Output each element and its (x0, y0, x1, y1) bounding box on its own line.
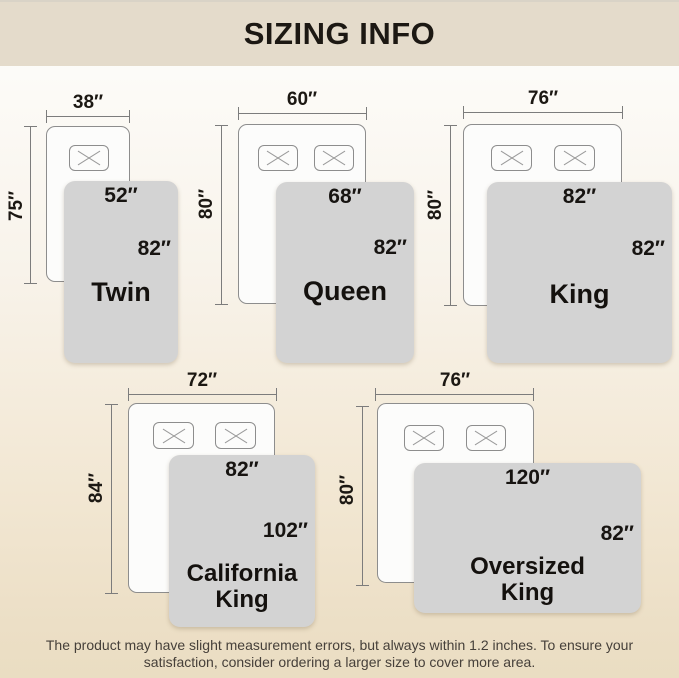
bed-height-label: 80″ (425, 190, 447, 220)
pillow-x-icon (492, 146, 531, 170)
pillow-x-icon (405, 426, 443, 450)
blanket-height-label: 82″ (632, 237, 665, 261)
pillow (314, 145, 354, 171)
pillow-x-icon (259, 146, 297, 170)
pillow-x-icon (315, 146, 353, 170)
blanket: 82″ 82″ King (487, 182, 672, 363)
blanket: 68″ 82″ Queen (276, 182, 414, 363)
page-title: SIZING INFO (244, 16, 436, 52)
pillow (404, 425, 444, 451)
pillow-x-icon (216, 423, 255, 448)
bed-height-label: 84″ (86, 473, 108, 503)
bed-width-label: 76″ (440, 370, 470, 392)
blanket: 82″ 102″ California King (169, 455, 315, 627)
size-name-label: Twin (91, 277, 150, 308)
blanket-height-label: 102″ (263, 519, 308, 543)
size-name-label: Oversized King (470, 554, 585, 606)
pillow-x-icon (70, 146, 108, 170)
blanket-width-label: 82″ (225, 458, 258, 482)
bed-height-label: 80″ (196, 189, 218, 219)
blanket: 52″ 82″ Twin (64, 181, 178, 363)
size-name-label: Queen (303, 276, 387, 307)
blanket: 120″ 82″ Oversized King (414, 463, 641, 613)
bed-width-label: 76″ (528, 88, 558, 110)
blanket-width-label: 82″ (563, 185, 596, 209)
pillow (491, 145, 532, 171)
sizing-info-graphic: SIZING INFO 38″ 75″ 52″ 82″ Twin 60″ 80″… (0, 0, 679, 678)
pillow (554, 145, 595, 171)
footer-line-1: The product may have slight measurement … (0, 637, 679, 654)
bed-width-label: 60″ (287, 89, 317, 111)
size-name-label: King (550, 279, 610, 310)
blanket-width-label: 52″ (104, 184, 137, 208)
size-name-label: California King (187, 561, 298, 613)
pillow (466, 425, 506, 451)
blanket-height-label: 82″ (138, 237, 171, 261)
blanket-height-label: 82″ (601, 522, 634, 546)
pillow-x-icon (555, 146, 594, 170)
pillow (215, 422, 256, 449)
header-band: SIZING INFO (0, 0, 679, 66)
blanket-width-label: 120″ (505, 466, 550, 490)
pillow (258, 145, 298, 171)
bed-width-label: 72″ (187, 370, 217, 392)
bed-width-label: 38″ (73, 92, 103, 114)
pillow-x-icon (467, 426, 505, 450)
pillow-x-icon (154, 423, 193, 448)
blanket-height-label: 82″ (374, 236, 407, 260)
bed-height-label: 75″ (6, 191, 28, 221)
blanket-width-label: 68″ (328, 185, 361, 209)
footer-line-2: satisfaction, consider ordering a larger… (0, 654, 679, 671)
pillow (69, 145, 109, 171)
bed-height-label: 80″ (337, 475, 359, 505)
footer-note: The product may have slight measurement … (0, 637, 679, 671)
pillow (153, 422, 194, 449)
